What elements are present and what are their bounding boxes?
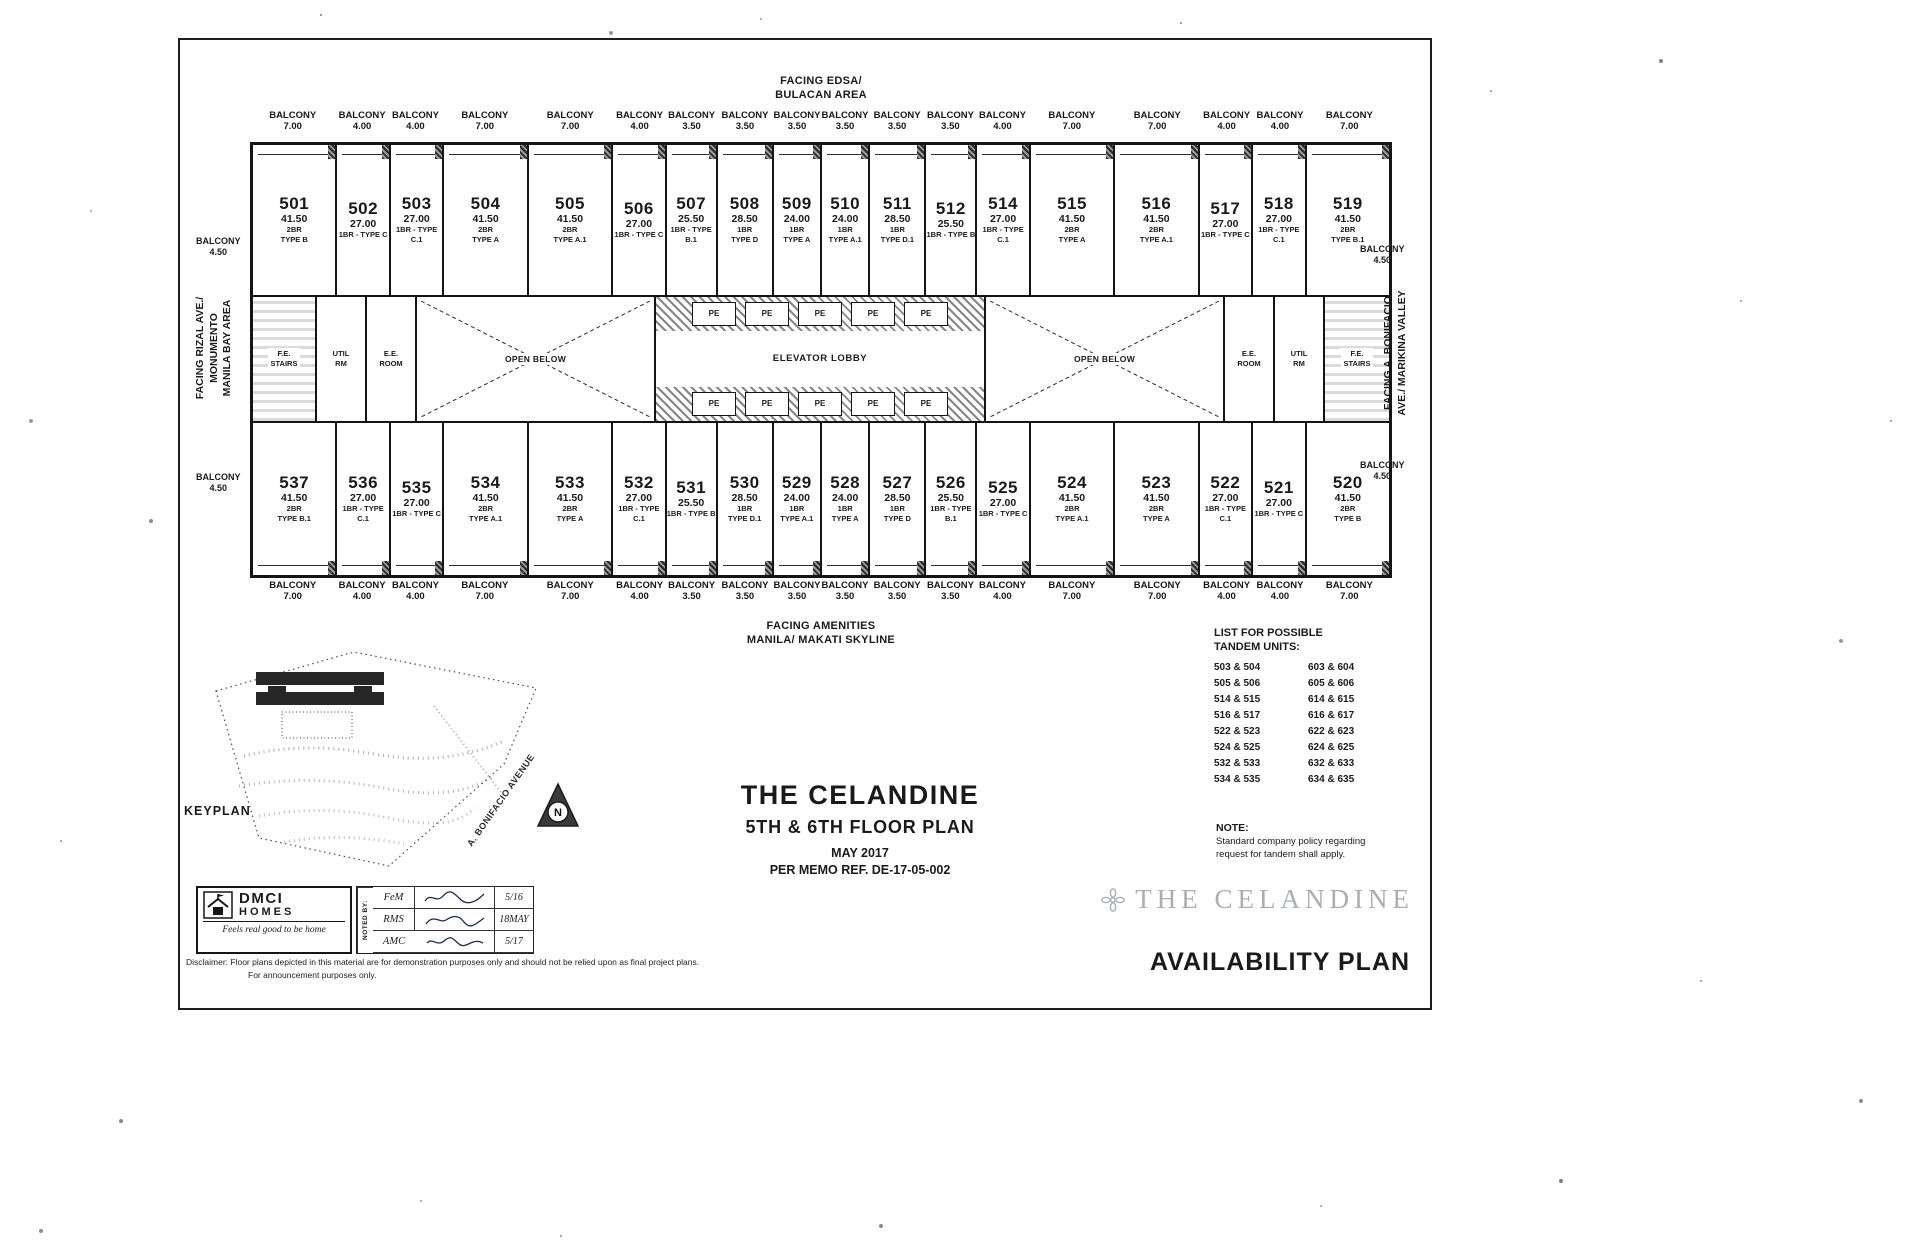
balcony-word: BALCONY — [442, 580, 527, 591]
unit-type-line1: 1BR — [728, 504, 761, 513]
elevator-bank-top: PEPEPEPEPE — [656, 297, 984, 331]
unit-type-line2: TYPE A.1 — [780, 514, 813, 523]
unit-number: 536 — [337, 474, 389, 491]
balcony-size: 7.00 — [1115, 591, 1200, 602]
keyplan-map: A. BONIFACIO AVENUE — [204, 646, 549, 881]
balcony-word: BALCONY — [196, 236, 241, 246]
unit-type-line1: 1BR — [882, 504, 912, 513]
passenger-elevator: PE — [798, 392, 842, 416]
floor-plan: FACING EDSA/ BULACAN AREA BALCONY 7.00 B… — [250, 74, 1392, 647]
unit-cell: 521 27.00 1BR - TYPE C — [1253, 423, 1307, 575]
unit-type-line2: TYPE D — [730, 235, 760, 244]
brand-tagline: Feels real good to be home — [203, 922, 345, 935]
unit-area: 27.00 — [339, 218, 388, 230]
unit-type-line2: TYPE A.1 — [1055, 514, 1088, 523]
balcony-word: BALCONY — [869, 110, 925, 121]
unit-label: 514 27.00 1BR - TYPE C.1 — [977, 195, 1029, 244]
ee-room-left: E.E. ROOM — [367, 297, 417, 421]
tandem-pair-row: 524 & 525 624 & 625 — [1214, 740, 1404, 756]
unit-cell: 519 41.50 2BR TYPE B.1 — [1307, 145, 1389, 295]
unit-cell: 508 28.50 1BR TYPE D — [718, 145, 774, 295]
unit-label: 521 27.00 1BR - TYPE C — [1254, 479, 1303, 518]
unit-cell: 509 24.00 1BR TYPE A — [774, 145, 822, 295]
balcony-label: BALCONY 4.00 — [613, 580, 666, 610]
unit-area: 27.00 — [613, 492, 665, 504]
balcony-word: BALCONY — [717, 580, 773, 591]
balcony-label: BALCONY 4.00 — [976, 110, 1029, 140]
passenger-elevator: PE — [692, 392, 736, 416]
unit-label: 511 28.50 1BR TYPE D.1 — [881, 195, 914, 244]
project-title: THE CELANDINE — [640, 780, 1080, 811]
balcony-label: BALCONY 4.00 — [976, 580, 1029, 610]
noted-by-label: NOTED BY: — [357, 887, 373, 953]
balcony-size: 4.00 — [335, 121, 388, 132]
tandem-pair-6th: 614 & 615 — [1308, 692, 1374, 708]
unit-cell: 531 25.50 1BR - TYPE B — [667, 423, 718, 575]
corner-balcony-top-right: BALCONY 4.50 — [1360, 244, 1405, 266]
unit-type-line1: 1BR - TYPE C — [392, 509, 441, 518]
unit-number: 503 — [391, 195, 443, 212]
unit-type-line2: TYPE A.1 — [1140, 235, 1173, 244]
unit-cell: 533 41.50 2BR TYPE A — [529, 423, 613, 575]
balcony-label: BALCONY 3.50 — [821, 110, 869, 140]
unit-number: 531 — [667, 479, 716, 496]
unit-label: 505 41.50 2BR TYPE A.1 — [553, 195, 586, 244]
tandem-pair-5th: 505 & 506 — [1214, 676, 1280, 692]
noted-initials: AMC — [373, 931, 415, 953]
unit-label: 512 25.50 1BR - TYPE B — [926, 200, 975, 239]
unit-number: 510 — [829, 195, 862, 212]
unit-label: 503 27.00 1BR - TYPE C.1 — [391, 195, 443, 244]
balcony-word: BALCONY — [717, 110, 773, 121]
balcony-word: BALCONY — [1360, 244, 1405, 254]
unit-number: 530 — [728, 474, 761, 491]
unit-area: 25.50 — [667, 497, 716, 509]
passenger-elevator: PE — [851, 392, 895, 416]
tandem-pair-row: 503 & 504 603 & 604 — [1214, 660, 1404, 676]
balcony-word: BALCONY — [666, 580, 717, 591]
unit-cell: 527 28.50 1BR TYPE D — [870, 423, 926, 575]
balcony-size: 7.00 — [1307, 121, 1392, 132]
unit-cell: 522 27.00 1BR - TYPE C.1 — [1200, 423, 1254, 575]
unit-label: 507 25.50 1BR - TYPE B.1 — [667, 195, 716, 244]
unit-type-line1: 1BR - TYPE C.1 — [1200, 504, 1252, 523]
unit-cell: 510 24.00 1BR TYPE A.1 — [822, 145, 870, 295]
unit-area: 24.00 — [782, 213, 812, 225]
balcony-word: BALCONY — [613, 110, 666, 121]
unit-label: 526 25.50 1BR - TYPE B.1 — [926, 474, 975, 523]
note-body: Standard company policy regarding reques… — [1216, 836, 1406, 862]
unit-label: 536 27.00 1BR - TYPE C.1 — [337, 474, 389, 523]
unit-number: 522 — [1200, 474, 1252, 491]
passenger-elevator: PE — [904, 392, 948, 416]
keyplan-site-drawing: A. BONIFACIO AVENUE — [204, 646, 549, 881]
balcony-word: BALCONY — [976, 110, 1029, 121]
balcony-size: 3.50 — [925, 121, 976, 132]
unit-cell: 516 41.50 2BR TYPE A.1 — [1115, 145, 1199, 295]
north-arrow-icon: N — [532, 780, 584, 832]
unit-number: 515 — [1057, 195, 1087, 212]
disclaimer-line2: For announcement purposes only. — [248, 969, 699, 982]
unit-number: 523 — [1141, 474, 1171, 491]
balcony-label: BALCONY 7.00 — [1029, 110, 1114, 140]
brand-name-homes: HOMES — [239, 906, 294, 918]
balcony-size: 7.00 — [442, 121, 527, 132]
balcony-word: BALCONY — [869, 580, 925, 591]
unit-type-line1: 1BR - TYPE B — [926, 230, 975, 239]
unit-row-top: 501 41.50 2BR TYPE B 502 27.00 1BR - TYP… — [253, 145, 1389, 297]
unit-number: 521 — [1254, 479, 1303, 496]
unit-type-line2: TYPE D.1 — [728, 514, 761, 523]
balcony-label: BALCONY 3.50 — [925, 110, 976, 140]
balcony-word: BALCONY — [1307, 580, 1392, 591]
balcony-size: 4.00 — [1253, 591, 1306, 602]
balcony-label: BALCONY 7.00 — [250, 110, 335, 140]
unit-number: 520 — [1333, 474, 1363, 491]
balcony-label: BALCONY 4.00 — [335, 110, 388, 140]
balcony-word: BALCONY — [389, 580, 442, 591]
tandem-pair-5th: 534 & 535 — [1214, 772, 1280, 788]
plan-date: MAY 2017 — [640, 846, 1080, 860]
tandem-pair-6th: 624 & 625 — [1308, 740, 1374, 756]
unit-type-line1: 1BR - TYPE C — [979, 509, 1028, 518]
unit-type-line2: TYPE A.1 — [469, 514, 502, 523]
unit-type-line1: 2BR — [1333, 504, 1363, 513]
unit-type-line1: 1BR - TYPE B — [667, 509, 716, 518]
util-room-right: UTIL RM — [1275, 297, 1325, 421]
passenger-elevator: PE — [904, 302, 948, 326]
unit-type-line1: 1BR - TYPE C.1 — [1253, 225, 1305, 244]
tandem-pair-6th: 616 & 617 — [1308, 708, 1374, 724]
balcony-word: BALCONY — [773, 110, 821, 121]
unit-area: 41.50 — [1333, 492, 1363, 504]
balcony-label: BALCONY 3.50 — [666, 110, 717, 140]
unit-label: 525 27.00 1BR - TYPE C — [979, 479, 1028, 518]
balcony-word: BALCONY — [1360, 460, 1405, 470]
brand-name-dmci: DMCI — [239, 891, 294, 906]
balcony-word: BALCONY — [613, 580, 666, 591]
balcony-size: 4.50 — [209, 483, 227, 493]
unit-label: 531 25.50 1BR - TYPE B — [667, 479, 716, 518]
balcony-size: 7.00 — [1029, 121, 1114, 132]
unit-type-line1: 1BR - TYPE C.1 — [391, 225, 443, 244]
unit-area: 27.00 — [391, 213, 443, 225]
unit-number: 535 — [392, 479, 441, 496]
unit-label: 529 24.00 1BR TYPE A.1 — [780, 474, 813, 523]
unit-type-line2: TYPE A — [555, 514, 585, 523]
unit-type-line2: TYPE A — [1141, 514, 1171, 523]
tandem-pair-5th: 503 & 504 — [1214, 660, 1280, 676]
disclaimer-text: Disclaimer: Floor plans depicted in this… — [186, 956, 699, 982]
noted-date: 5/17 — [495, 931, 533, 953]
unit-label: 534 41.50 2BR TYPE A.1 — [469, 474, 502, 523]
unit-area: 28.50 — [728, 492, 761, 504]
elevator-core: PEPEPEPEPE ELEVATOR LOBBY PEPEPEPEPE — [656, 297, 986, 421]
fe-stairs-label: F.E. STAIRS — [268, 348, 301, 369]
signature-scribble — [415, 887, 495, 909]
balcony-size: 7.00 — [528, 121, 613, 132]
unit-number: 514 — [977, 195, 1029, 212]
balcony-size: 7.00 — [528, 591, 613, 602]
unit-type-line1: 1BR - TYPE C — [1201, 230, 1250, 239]
unit-type-line2: TYPE D.1 — [881, 235, 914, 244]
note-block: NOTE: Standard company policy regarding … — [1216, 822, 1406, 862]
unit-label: 504 41.50 2BR TYPE A — [471, 195, 501, 244]
unit-number: 505 — [553, 195, 586, 212]
balcony-size: 3.50 — [717, 591, 773, 602]
unit-row-bottom: 537 41.50 2BR TYPE B.1 536 27.00 1BR - T… — [253, 423, 1389, 575]
balcony-size: 3.50 — [821, 591, 869, 602]
unit-number: 518 — [1253, 195, 1305, 212]
tandem-pair-row: 514 & 515 614 & 615 — [1214, 692, 1404, 708]
plan-sheet: FACING EDSA/ BULACAN AREA BALCONY 7.00 B… — [178, 38, 1432, 1010]
unit-area: 27.00 — [392, 497, 441, 509]
unit-type-line2: TYPE A — [782, 235, 812, 244]
unit-type-line1: 1BR — [782, 225, 812, 234]
balcony-word: BALCONY — [1029, 110, 1114, 121]
unit-cell: 526 25.50 1BR - TYPE B.1 — [926, 423, 977, 575]
balcony-size: 4.00 — [1253, 121, 1306, 132]
unit-type-line2: TYPE B — [1333, 514, 1363, 523]
unit-type-line1: 2BR — [1331, 225, 1364, 234]
unit-number: 533 — [555, 474, 585, 491]
watermark-text: THE CELANDINE — [1135, 884, 1414, 915]
tandem-pair-row: 534 & 535 634 & 635 — [1214, 772, 1404, 788]
unit-cell: 524 41.50 2BR TYPE A.1 — [1031, 423, 1115, 575]
balcony-label: BALCONY 3.50 — [869, 110, 925, 140]
unit-area: 25.50 — [926, 218, 975, 230]
balcony-word: BALCONY — [389, 110, 442, 121]
tandem-pair-6th: 605 & 606 — [1308, 676, 1374, 692]
unit-label: 517 27.00 1BR - TYPE C — [1201, 200, 1250, 239]
balcony-size: 4.00 — [1200, 591, 1253, 602]
unit-type-line1: 1BR - TYPE C.1 — [977, 225, 1029, 244]
memo-reference: PER MEMO REF. DE-17-05-002 — [640, 863, 1080, 877]
balcony-label: BALCONY 3.50 — [717, 580, 773, 610]
celandine-watermark: THE CELANDINE — [1101, 884, 1414, 915]
unit-area: 27.00 — [979, 497, 1028, 509]
balcony-size: 3.50 — [666, 591, 717, 602]
balcony-word: BALCONY — [821, 110, 869, 121]
unit-cell: 506 27.00 1BR - TYPE C — [613, 145, 667, 295]
building-outline: 501 41.50 2BR TYPE B 502 27.00 1BR - TYP… — [250, 142, 1392, 578]
balcony-word: BALCONY — [250, 110, 335, 121]
unit-type-line1: 1BR - TYPE C — [339, 230, 388, 239]
unit-number: 504 — [471, 195, 501, 212]
ee-room-right: E.E. ROOM — [1225, 297, 1275, 421]
unit-cell: 505 41.50 2BR TYPE A.1 — [529, 145, 613, 295]
balcony-label: BALCONY 3.50 — [717, 110, 773, 140]
dmci-homes-logo: DMCI HOMES Feels real good to be home — [196, 886, 352, 954]
balcony-label: BALCONY 3.50 — [925, 580, 976, 610]
unit-area: 41.50 — [1141, 492, 1171, 504]
core-band: F.E. STAIRS UTIL RM E.E. ROOM OPEN BELOW — [253, 297, 1389, 423]
balcony-word: BALCONY — [821, 580, 869, 591]
balcony-word: BALCONY — [976, 580, 1029, 591]
unit-label: 528 24.00 1BR TYPE A — [830, 474, 860, 523]
open-below-label-wrap: OPEN BELOW — [417, 297, 654, 421]
facing-label-right: FACING A. BONIFACIO AVE./ MARIKINA VALLE… — [1382, 264, 1409, 442]
unit-number: 519 — [1331, 195, 1364, 212]
unit-label: 533 41.50 2BR TYPE A — [555, 474, 585, 523]
unit-type-line1: 2BR — [1055, 504, 1088, 513]
tandem-pair-row: 516 & 517 616 & 617 — [1214, 708, 1404, 724]
unit-type-line1: 1BR — [830, 504, 860, 513]
balcony-size: 4.00 — [976, 591, 1029, 602]
tandem-pair-5th: 522 & 523 — [1214, 724, 1280, 740]
tandem-pair-row: 505 & 506 605 & 606 — [1214, 676, 1404, 692]
unit-area: 25.50 — [926, 492, 975, 504]
tandem-units-list: LIST FOR POSSIBLE TANDEM UNITS: 503 & 50… — [1214, 626, 1404, 788]
fire-exit-stairs-left: F.E. STAIRS — [253, 297, 317, 421]
unit-type-line1: 2BR — [279, 225, 309, 234]
unit-number: 506 — [615, 200, 664, 217]
unit-number: 507 — [667, 195, 716, 212]
unit-number: 529 — [780, 474, 813, 491]
unit-cell: 501 41.50 2BR TYPE B — [253, 145, 337, 295]
scanned-floor-plan-page: FACING EDSA/ BULACAN AREA BALCONY 7.00 B… — [0, 0, 1920, 1255]
unit-area: 41.50 — [471, 213, 501, 225]
balcony-row-bottom: BALCONY 7.00 BALCONY 4.00 BALCONY 4.00 B… — [250, 580, 1392, 610]
unit-number: 512 — [926, 200, 975, 217]
corner-balcony-top-left: BALCONY 4.50 — [196, 236, 241, 258]
balcony-label: BALCONY 3.50 — [773, 110, 821, 140]
balcony-label: BALCONY 4.00 — [1200, 580, 1253, 610]
unit-type-line1: 1BR - TYPE B.1 — [667, 225, 716, 244]
balcony-label: BALCONY 7.00 — [442, 110, 527, 140]
balcony-label: BALCONY 7.00 — [250, 580, 335, 610]
unit-type-line2: TYPE A — [830, 514, 860, 523]
fe-stairs-label: F.E. STAIRS — [1341, 348, 1374, 369]
unit-type-line1: 1BR - TYPE C.1 — [337, 504, 389, 523]
balcony-row-top: BALCONY 7.00 BALCONY 4.00 BALCONY 4.00 B… — [250, 110, 1392, 140]
unit-cell: 504 41.50 2BR TYPE A — [444, 145, 528, 295]
signature-scribble — [415, 931, 495, 953]
fire-exit-stairs-right: F.E. STAIRS — [1325, 297, 1389, 421]
unit-cell: 502 27.00 1BR - TYPE C — [337, 145, 391, 295]
balcony-label: BALCONY 7.00 — [1115, 580, 1200, 610]
balcony-size: 7.00 — [1115, 121, 1200, 132]
balcony-word: BALCONY — [335, 110, 388, 121]
unit-type-line2: TYPE D — [882, 514, 912, 523]
unit-type-line1: 1BR — [780, 504, 813, 513]
balcony-size: 3.50 — [869, 121, 925, 132]
unit-label: 509 24.00 1BR TYPE A — [782, 195, 812, 244]
unit-area: 41.50 — [279, 213, 309, 225]
unit-area: 41.50 — [1331, 213, 1364, 225]
unit-cell: 503 27.00 1BR - TYPE C.1 — [391, 145, 445, 295]
passenger-elevator: PE — [692, 302, 736, 326]
unit-label: 527 28.50 1BR TYPE D — [882, 474, 912, 523]
tandem-pair-5th: 524 & 525 — [1214, 740, 1280, 756]
tandem-pair-row: 532 & 533 632 & 633 — [1214, 756, 1404, 772]
unit-area: 24.00 — [830, 492, 860, 504]
noted-initials: RMS — [373, 909, 415, 931]
util-room-left: UTIL RM — [317, 297, 367, 421]
unit-area: 25.50 — [667, 213, 716, 225]
unit-type-line1: 1BR — [829, 225, 862, 234]
unit-number: 501 — [279, 195, 309, 212]
unit-number: 526 — [926, 474, 975, 491]
unit-label: 523 41.50 2BR TYPE A — [1141, 474, 1171, 523]
balcony-word: BALCONY — [1115, 110, 1200, 121]
balcony-label: BALCONY 3.50 — [773, 580, 821, 610]
unit-area: 27.00 — [1200, 492, 1252, 504]
unit-area: 28.50 — [881, 213, 914, 225]
unit-cell: 514 27.00 1BR - TYPE C.1 — [977, 145, 1031, 295]
balcony-word: BALCONY — [666, 110, 717, 121]
unit-area: 24.00 — [829, 213, 862, 225]
balcony-size: 3.50 — [717, 121, 773, 132]
balcony-size: 4.00 — [389, 121, 442, 132]
open-below-label-wrap: OPEN BELOW — [986, 297, 1223, 421]
unit-cell: 512 25.50 1BR - TYPE B — [926, 145, 977, 295]
passenger-elevator: PE — [851, 302, 895, 326]
unit-cell: 536 27.00 1BR - TYPE C.1 — [337, 423, 391, 575]
signature-scribble — [415, 909, 495, 931]
note-title: NOTE: — [1216, 822, 1406, 834]
noted-by-table: NOTED BY: FeM 5/16 RMS 18MAY AMC 5/17 — [356, 886, 534, 954]
tandem-pair-6th: 634 & 635 — [1308, 772, 1374, 788]
noted-date: 18MAY — [495, 909, 533, 931]
facing-label-top: FACING EDSA/ BULACAN AREA — [250, 74, 1392, 103]
unit-number: 516 — [1140, 195, 1173, 212]
title-block: THE CELANDINE 5TH & 6TH FLOOR PLAN MAY 2… — [640, 780, 1080, 877]
balcony-label: BALCONY 3.50 — [821, 580, 869, 610]
balcony-label: BALCONY 7.00 — [442, 580, 527, 610]
unit-area: 27.00 — [977, 213, 1029, 225]
balcony-size: 3.50 — [869, 591, 925, 602]
balcony-word: BALCONY — [1029, 580, 1114, 591]
balcony-label: BALCONY 4.00 — [389, 580, 442, 610]
unit-label: 502 27.00 1BR - TYPE C — [339, 200, 388, 239]
unit-number: 534 — [469, 474, 502, 491]
unit-area: 27.00 — [337, 492, 389, 504]
corner-balcony-bottom-right: BALCONY 4.50 — [1360, 460, 1405, 482]
elevator-bank-bottom: PEPEPEPEPE — [656, 387, 984, 421]
unit-number: 511 — [881, 195, 914, 212]
unit-label: 524 41.50 2BR TYPE A.1 — [1055, 474, 1088, 523]
unit-label: 501 41.50 2BR TYPE B — [279, 195, 309, 244]
north-letter: N — [554, 807, 562, 819]
unit-type-line2: TYPE B.1 — [278, 514, 311, 523]
unit-type-line1: 1BR — [881, 225, 914, 234]
unit-type-line1: 1BR — [730, 225, 760, 234]
unit-type-line1: 2BR — [555, 504, 585, 513]
unit-label: 510 24.00 1BR TYPE A.1 — [829, 195, 862, 244]
noted-date: 5/16 — [495, 887, 533, 909]
unit-area: 41.50 — [1140, 213, 1173, 225]
corner-balcony-bottom-left: BALCONY 4.50 — [196, 472, 241, 494]
balcony-word: BALCONY — [335, 580, 388, 591]
tandem-pair-6th: 632 & 633 — [1308, 756, 1374, 772]
balcony-label: BALCONY 7.00 — [1115, 110, 1200, 140]
balcony-label: BALCONY 7.00 — [1029, 580, 1114, 610]
unit-area: 28.50 — [882, 492, 912, 504]
unit-cell: 511 28.50 1BR TYPE D.1 — [870, 145, 926, 295]
balcony-size: 4.50 — [209, 247, 227, 257]
balcony-size: 4.00 — [613, 121, 666, 132]
balcony-label: BALCONY 4.00 — [613, 110, 666, 140]
balcony-size: 4.50 — [1373, 255, 1391, 265]
unit-label: 519 41.50 2BR TYPE B.1 — [1331, 195, 1364, 244]
unit-number: 527 — [882, 474, 912, 491]
balcony-size: 4.00 — [976, 121, 1029, 132]
tandem-pair-5th: 514 & 515 — [1214, 692, 1280, 708]
balcony-word: BALCONY — [925, 110, 976, 121]
unit-cell: 517 27.00 1BR - TYPE C — [1200, 145, 1254, 295]
tandem-pair-6th: 603 & 604 — [1308, 660, 1374, 676]
